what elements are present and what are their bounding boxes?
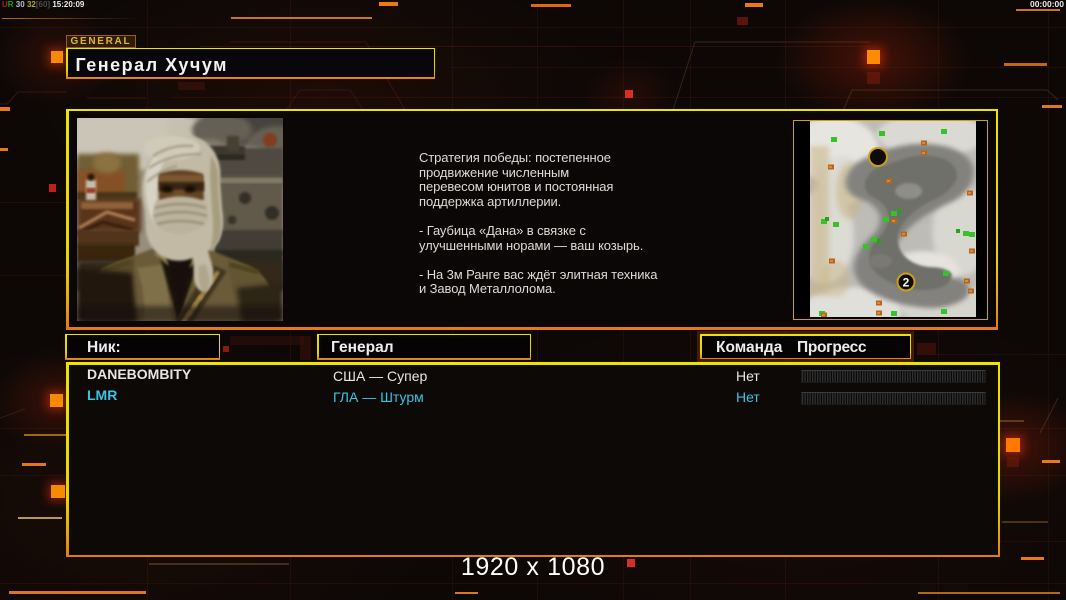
svg-text:2: 2	[902, 275, 909, 289]
